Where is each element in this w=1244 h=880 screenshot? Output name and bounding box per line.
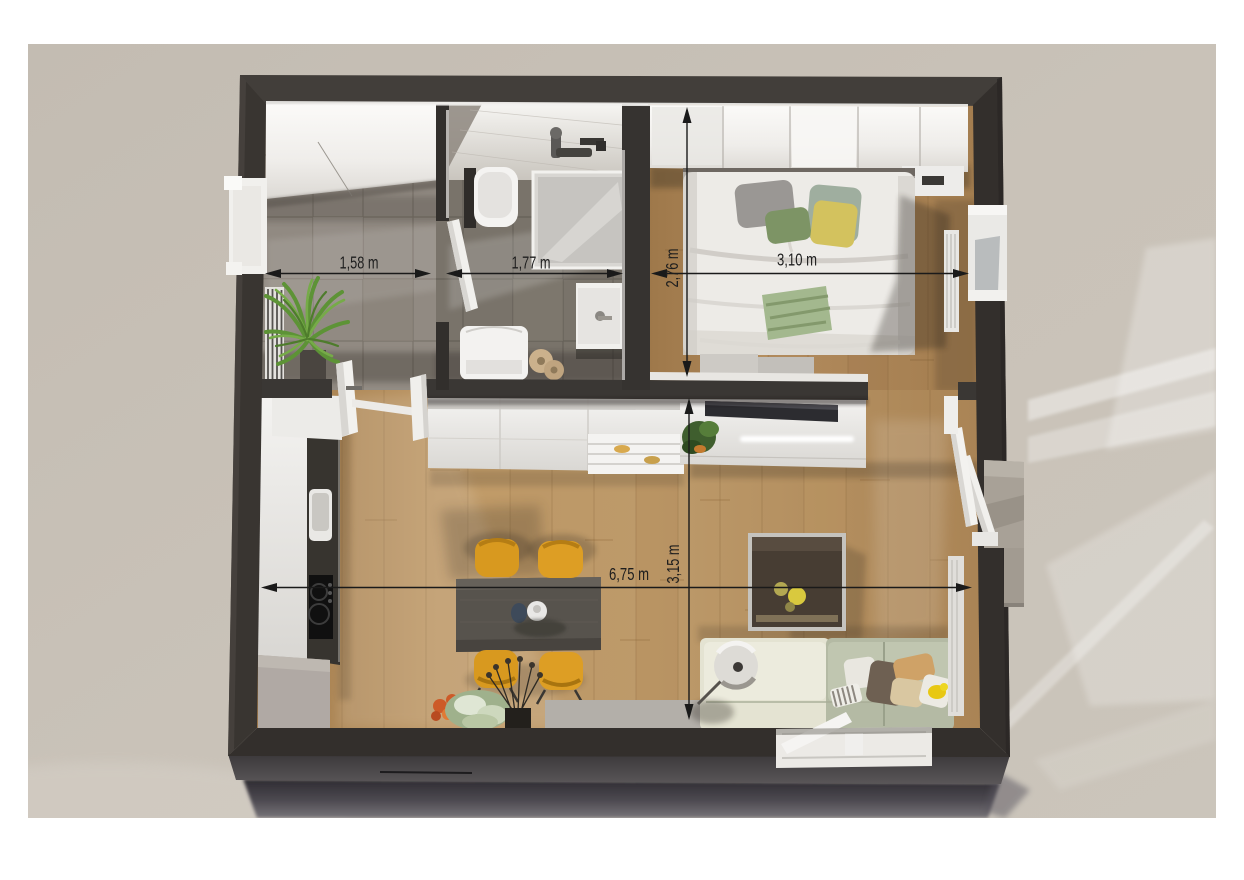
svg-text:3,10 m: 3,10 m bbox=[777, 250, 817, 270]
svg-text:6,75 m: 6,75 m bbox=[609, 564, 649, 584]
svg-text:1,77 m: 1,77 m bbox=[512, 253, 551, 273]
svg-text:3,15 m: 3,15 m bbox=[663, 545, 683, 584]
svg-text:2,76 m: 2,76 m bbox=[662, 249, 682, 288]
svg-text:1,58 m: 1,58 m bbox=[340, 253, 379, 273]
